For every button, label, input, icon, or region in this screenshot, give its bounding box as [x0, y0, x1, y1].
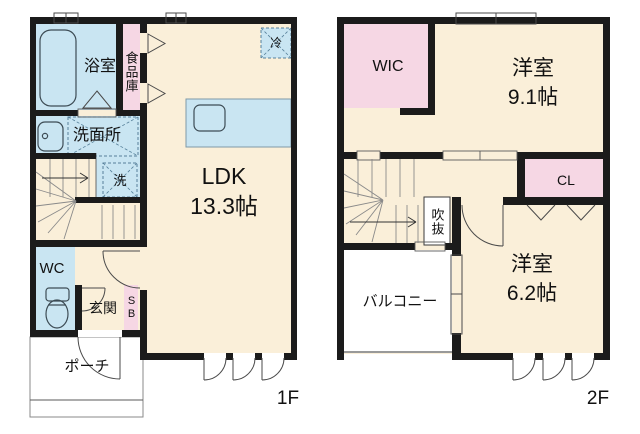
- bedroom1-size-label: 9.1帖: [483, 84, 583, 110]
- pantry-label: 食品庫: [121, 30, 141, 114]
- closet-label: CL: [545, 170, 587, 190]
- washer-label: 洗: [104, 166, 136, 194]
- wall: [535, 353, 543, 360]
- wall: [140, 24, 147, 33]
- wall: [603, 17, 610, 360]
- floor1-title: 1F: [268, 386, 308, 410]
- wall: [452, 333, 461, 360]
- wall: [30, 17, 36, 337]
- void-label: 吹抜: [427, 200, 447, 244]
- wall: [30, 330, 78, 337]
- wall: [140, 290, 147, 360]
- wall: [291, 17, 297, 360]
- kitchen-counter: [186, 99, 291, 147]
- wall: [30, 240, 140, 247]
- door-opening: [543, 353, 565, 360]
- wall: [344, 243, 415, 250]
- wall: [140, 103, 147, 247]
- wc-label: WC: [32, 259, 72, 277]
- porch-label: ポーチ: [52, 356, 122, 376]
- bedroom2-name-label: 洋室: [482, 251, 582, 277]
- wall: [380, 152, 443, 159]
- wall: [30, 110, 78, 116]
- floor2-title: 2F: [578, 386, 618, 410]
- door-opening: [572, 353, 594, 360]
- ldk-name-label: LDK: [160, 162, 288, 190]
- wall: [337, 152, 357, 159]
- door-opening: [513, 353, 535, 360]
- door-swing: [513, 358, 594, 380]
- balcony-railing: [344, 351, 452, 353]
- wall: [594, 353, 610, 360]
- wall: [337, 17, 610, 24]
- washroom-label: 洗面所: [47, 126, 147, 146]
- wall: [445, 243, 461, 250]
- wall: [452, 353, 513, 360]
- bedroom1-name-label: 洋室: [483, 55, 583, 81]
- wall: [565, 353, 572, 360]
- wic-label: WIC: [358, 57, 418, 77]
- wall: [226, 353, 233, 360]
- door-opening: [233, 353, 255, 360]
- entrance-label: 玄関: [81, 298, 125, 318]
- wall: [140, 53, 147, 83]
- wall: [517, 152, 610, 159]
- wall: [337, 17, 344, 360]
- wall: [428, 17, 435, 115]
- wall: [143, 353, 204, 360]
- floorplan-image: 浴室 食品庫 冷 洗面所 洗 LDK 13.3帖 WC 玄関 SB ポーチ 1F…: [0, 0, 640, 434]
- door-opening: [78, 330, 122, 337]
- wall: [503, 197, 610, 205]
- wall: [284, 353, 297, 360]
- porch-area: [30, 337, 143, 417]
- bedroom2-size-label: 6.2帖: [482, 280, 582, 306]
- wall: [400, 108, 435, 115]
- wall: [75, 197, 140, 203]
- wall: [122, 330, 143, 337]
- wall: [255, 353, 262, 360]
- ldk-size-label: 13.3帖: [160, 192, 288, 220]
- door-opening: [204, 353, 226, 360]
- door-swing: [204, 358, 284, 380]
- shoebox-label: SB: [124, 287, 138, 329]
- wall: [30, 153, 96, 159]
- balcony-label: バルコニー: [354, 291, 446, 311]
- door-opening: [262, 353, 284, 360]
- fridge-label: 冷: [261, 29, 291, 57]
